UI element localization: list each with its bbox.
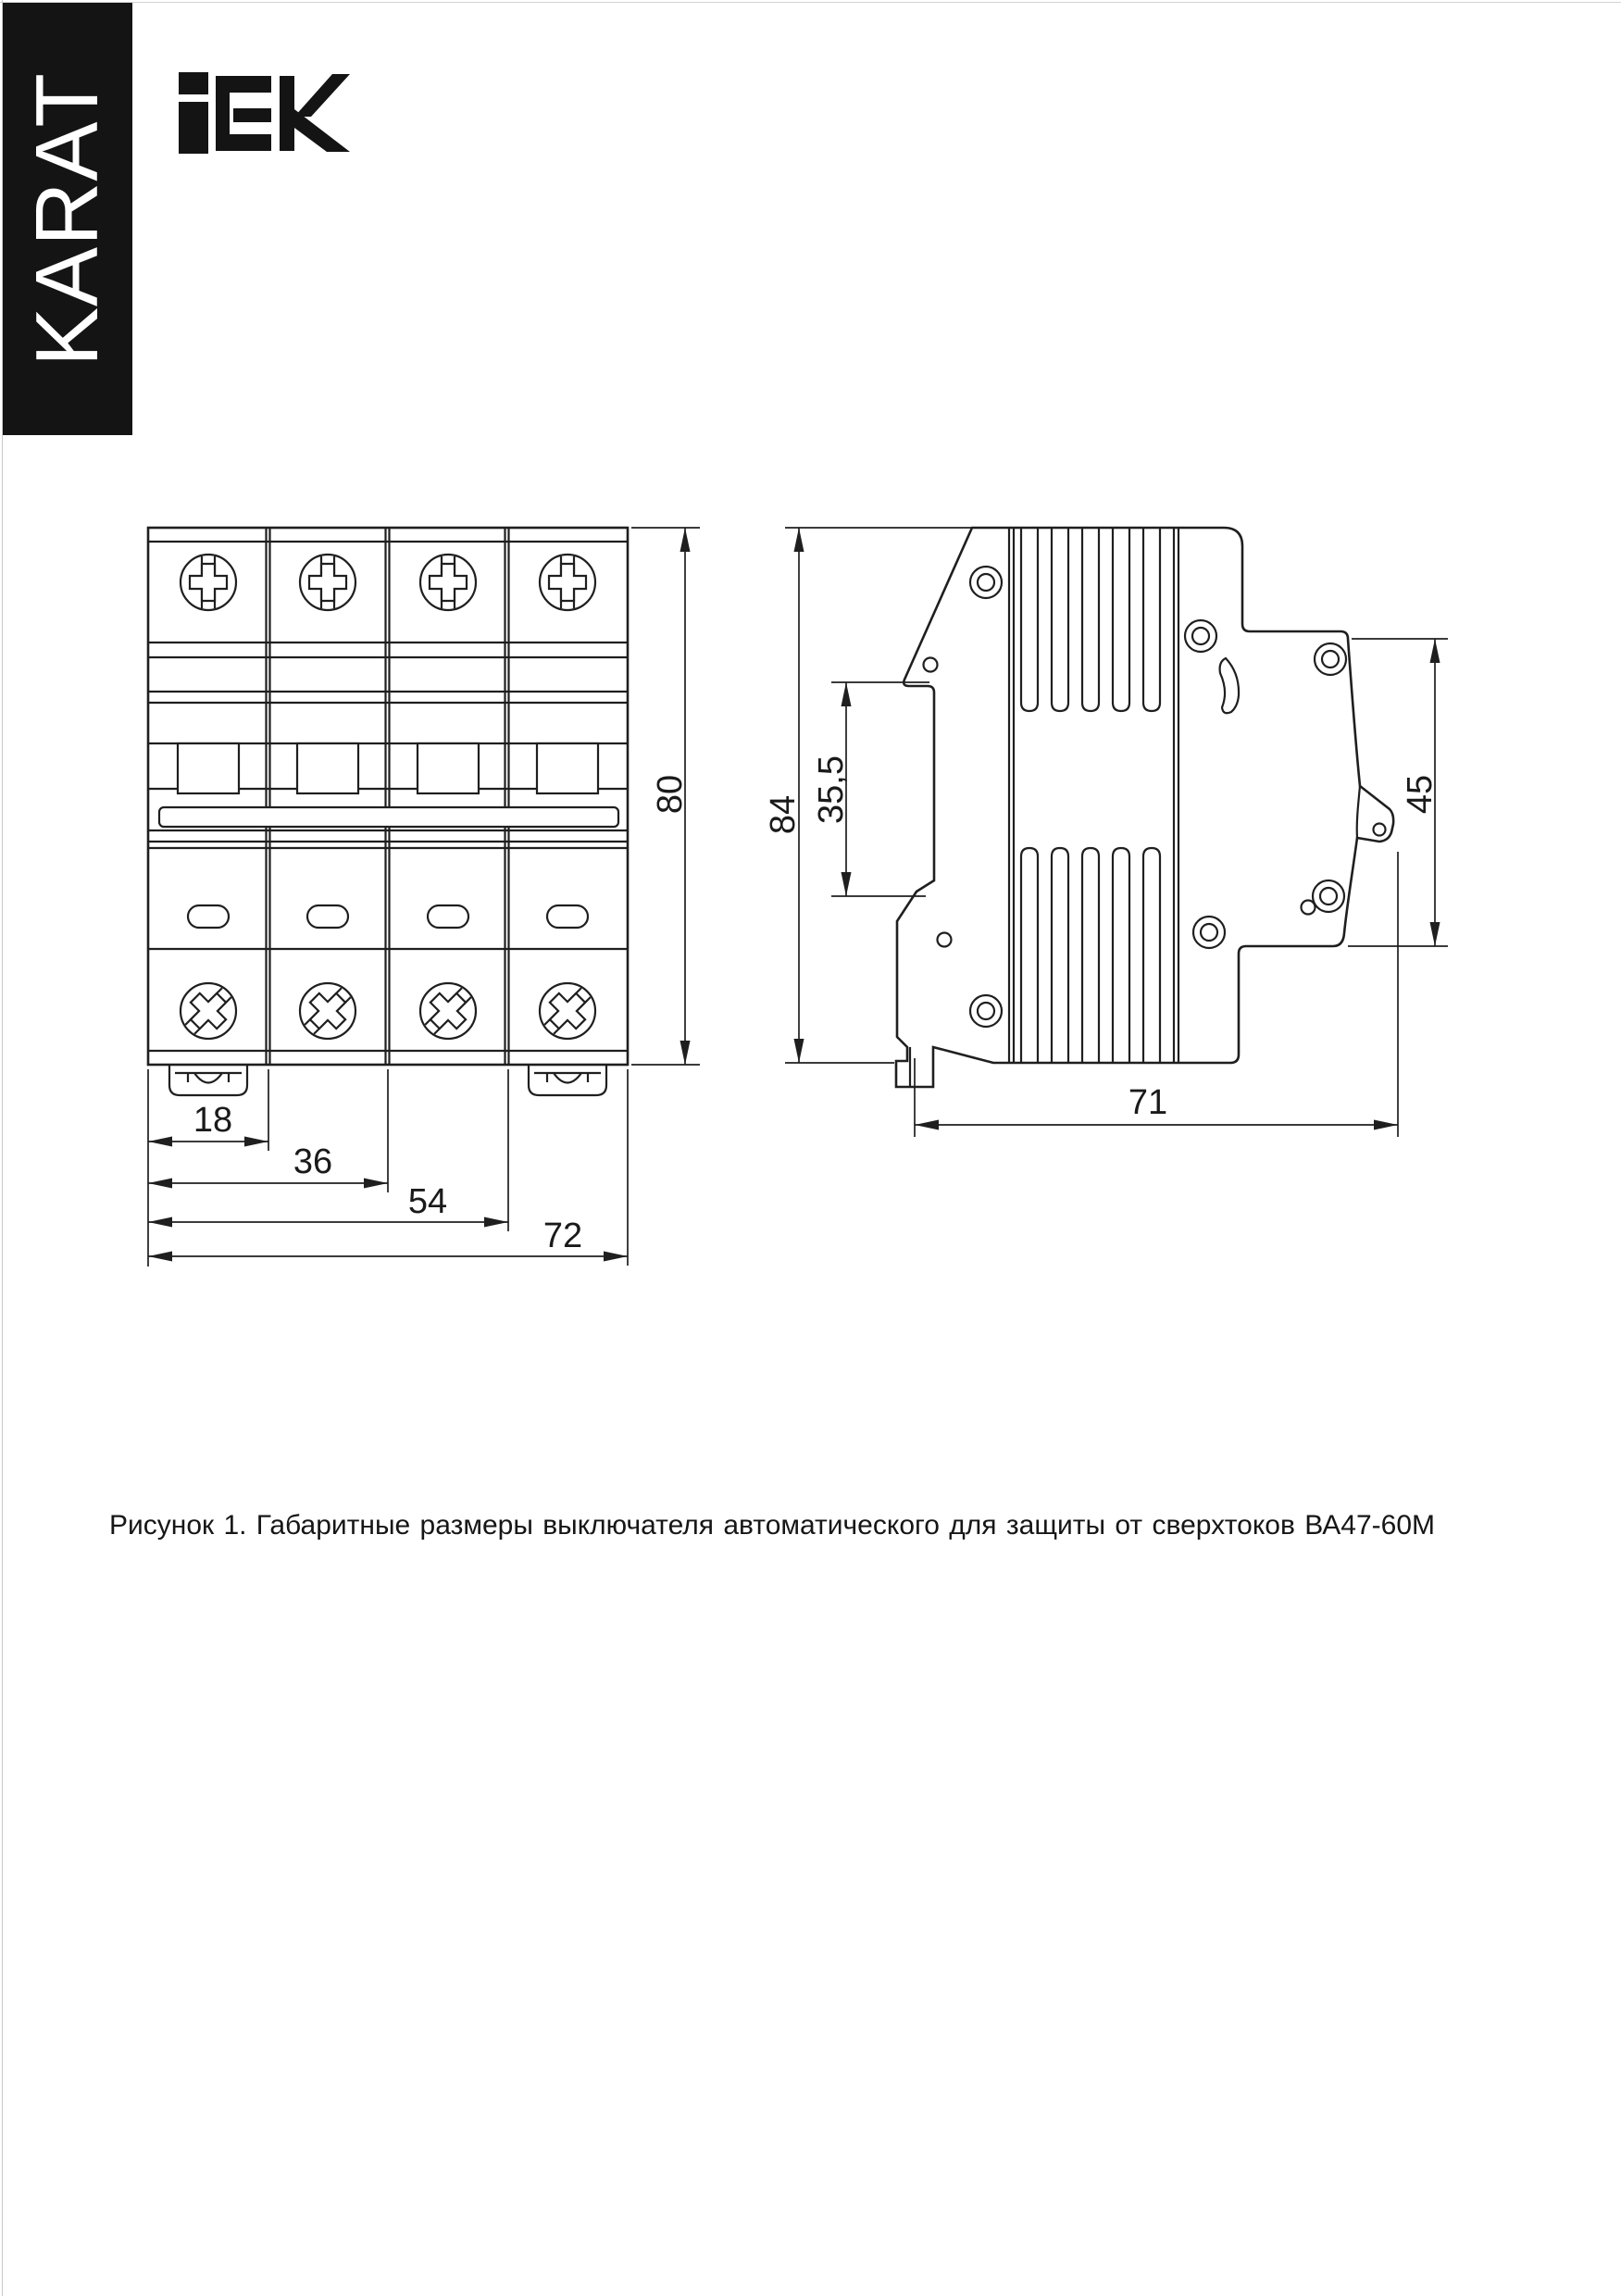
dim-front-width2-label: 36 [293,1142,332,1181]
toggle-handle [178,743,239,793]
vent-slots-top [1021,528,1160,711]
toggle-handle [537,743,598,793]
vent-slot [1052,528,1068,711]
dim-front-height-label: 80 [651,775,690,814]
dim-side-height-label: 84 [764,795,803,834]
vent-slot [1143,848,1160,1063]
mounting-slot [428,905,468,928]
din-clip [529,1065,606,1095]
rivet [1185,620,1216,652]
extension-lines [148,528,1448,1267]
pozidriv-screw-icon [409,972,488,1051]
phillips-screw-icon [181,555,236,610]
dim-side-back-height-label: 45 [1401,775,1440,814]
side-view [896,528,1393,1087]
rivet [970,567,1002,598]
dim-front-total-width-label: 72 [543,1217,582,1255]
toggle-row [148,743,628,827]
toggle-handle [297,743,358,793]
mounting-slot [547,905,588,928]
pin-hole [938,933,952,947]
dim-front-width3-label: 54 [408,1182,447,1221]
side-outline [896,528,1393,1087]
vent-slot [1021,848,1038,1063]
figure-caption: Рисунок 1. Габаритные размеры выключател… [109,1509,1435,1542]
phillips-screw-icon [540,555,595,610]
vent-slot [1113,528,1129,711]
rivet [1193,917,1225,948]
vent-slot [1052,848,1068,1063]
din-clip [169,1065,247,1095]
latch-tab-hole [1374,824,1386,836]
arrowheads [148,528,1440,1262]
vent-band [1009,528,1178,1063]
kidney-slot [1220,658,1239,713]
pin-hole [924,658,938,672]
pole-dividers [267,528,509,1065]
dim-side-din-offset-label: 35,5 [812,755,851,824]
pozidriv-screw-icon [289,972,368,1051]
vent-slot [1143,528,1160,711]
front-view [148,528,628,1095]
dim-side-depth-label: 71 [1128,1083,1167,1122]
phillips-screw-icon [300,555,355,610]
dim-front-width1-label: 18 [193,1101,232,1140]
phillips-screw-icon [420,555,476,610]
terminal-screws-bottom [169,972,607,1051]
rivets [970,567,1346,1027]
pozidriv-screw-icon [169,972,248,1051]
tie-bar [159,807,618,827]
mounting-slot [188,905,229,928]
pozidriv-screw-icon [529,972,607,1051]
dimensions: 18 36 54 72 80 84 35,5 45 71 [148,528,1448,1267]
mounting-slot [307,905,348,928]
rivet [1313,880,1344,912]
back-edge-line [1357,786,1360,838]
vent-slots-bottom [1021,848,1160,1063]
document-page: KARAT [0,0,1621,2296]
vent-slot [1113,848,1129,1063]
pin-hole [1302,901,1316,915]
terminal-screws-top [181,555,595,610]
vent-slot [1082,848,1099,1063]
rivet [970,995,1002,1027]
vent-slot [1082,528,1099,711]
dimension-drawing: 18 36 54 72 80 84 35,5 45 71 [0,0,1621,2296]
rivet [1315,643,1346,675]
front-oval-slots [188,905,588,928]
toggle-handle [418,743,479,793]
front-horizontal-lines [148,542,628,1051]
dimension-lines [148,528,1435,1256]
vent-slot [1021,528,1038,711]
